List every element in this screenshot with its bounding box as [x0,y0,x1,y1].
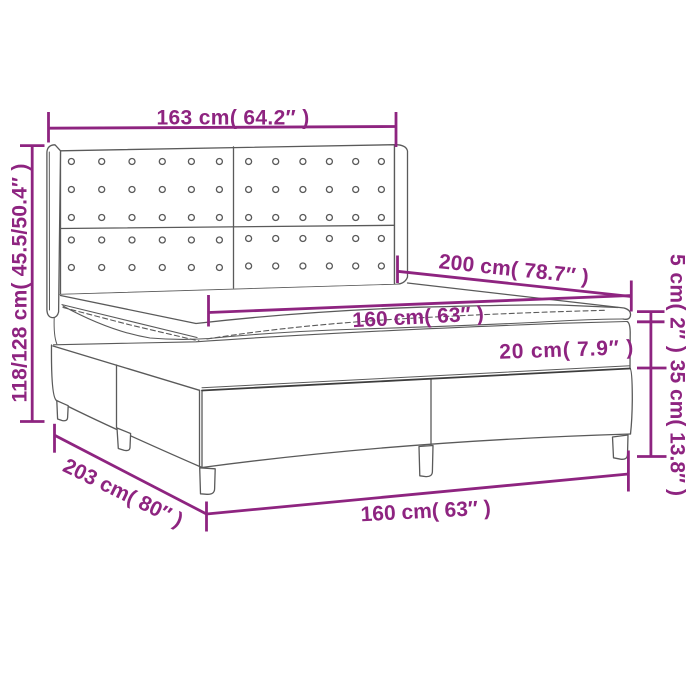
svg-text:118/128 cm( 45.5/50.4″ ): 118/128 cm( 45.5/50.4″ ) [9,163,32,402]
svg-text:20 cm( 7.9″ ): 20 cm( 7.9″ ) [499,336,635,364]
svg-text:35 cm( 13.8″ ): 35 cm( 13.8″ ) [666,360,689,496]
svg-text:5 cm( 2″ ): 5 cm( 2″ ) [666,254,689,353]
svg-text:163 cm( 64.2″ ): 163 cm( 64.2″ ) [157,106,310,129]
